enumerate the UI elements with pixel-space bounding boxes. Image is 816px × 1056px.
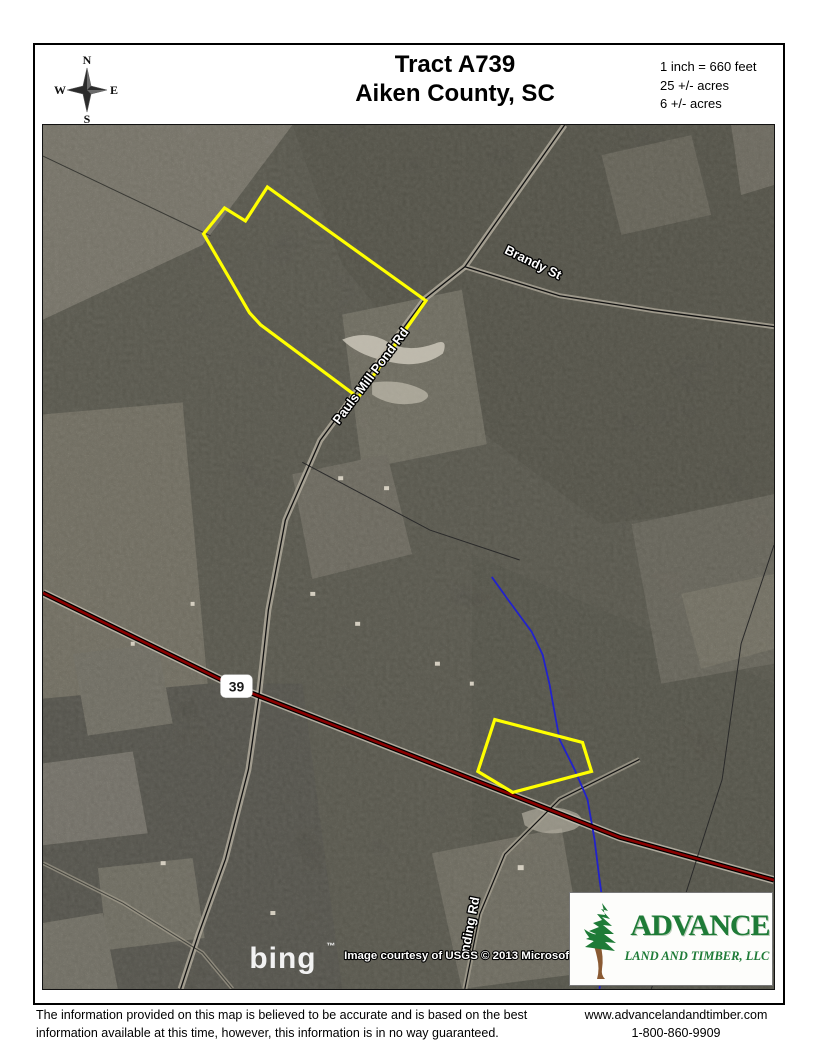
company-logo: ADVANCE LAND AND TIMBER, LLC bbox=[569, 892, 773, 986]
compass-e: E bbox=[110, 83, 118, 97]
disclaimer-text: The information provided on this map is … bbox=[36, 1006, 527, 1042]
county-title: Aiken County, SC bbox=[245, 79, 665, 109]
compass-n: N bbox=[83, 53, 92, 67]
compass-rose: N E S W bbox=[50, 52, 124, 126]
company-subtitle: LAND AND TIMBER, LLC bbox=[622, 949, 772, 964]
bing-trademark: ™ bbox=[326, 941, 335, 951]
acres-line-2: 6 +/- acres bbox=[660, 95, 757, 114]
acres-line-1: 25 +/- acres bbox=[660, 77, 757, 96]
compass-w: W bbox=[54, 83, 66, 97]
disclaimer-line-1: The information provided on this map is … bbox=[36, 1006, 527, 1024]
texture-light bbox=[43, 125, 774, 989]
disclaimer-line-2: information available at this time, howe… bbox=[36, 1024, 527, 1042]
bing-logo: bing bbox=[249, 942, 316, 975]
phone-text: 1-800-860-9909 bbox=[570, 1024, 782, 1042]
company-name: ADVANCE bbox=[628, 909, 772, 943]
tract-title: Tract A739 bbox=[245, 50, 665, 79]
aerial-map: 39 Brandy St Pauls Mill Pond Rd nding Rd… bbox=[42, 124, 775, 990]
imagery-attribution: Image courtesy of USGS © 2013 Microsoft … bbox=[344, 950, 584, 962]
pine-tree-icon bbox=[574, 899, 632, 981]
highway-shield-label: 39 bbox=[229, 679, 245, 695]
contact-info: www.advancelandandtimber.com 1-800-860-9… bbox=[570, 1006, 782, 1042]
page-title: Tract A739 Aiken County, SC bbox=[245, 50, 665, 109]
scale-line: 1 inch = 660 feet bbox=[660, 58, 757, 77]
map-flyer-page: N E S W Tract A739 Aiken County, SC 1 in… bbox=[0, 0, 816, 1056]
scale-info: 1 inch = 660 feet 25 +/- acres 6 +/- acr… bbox=[660, 58, 757, 114]
highway-shield: 39 bbox=[221, 675, 253, 698]
website-text: www.advancelandandtimber.com bbox=[570, 1006, 782, 1024]
